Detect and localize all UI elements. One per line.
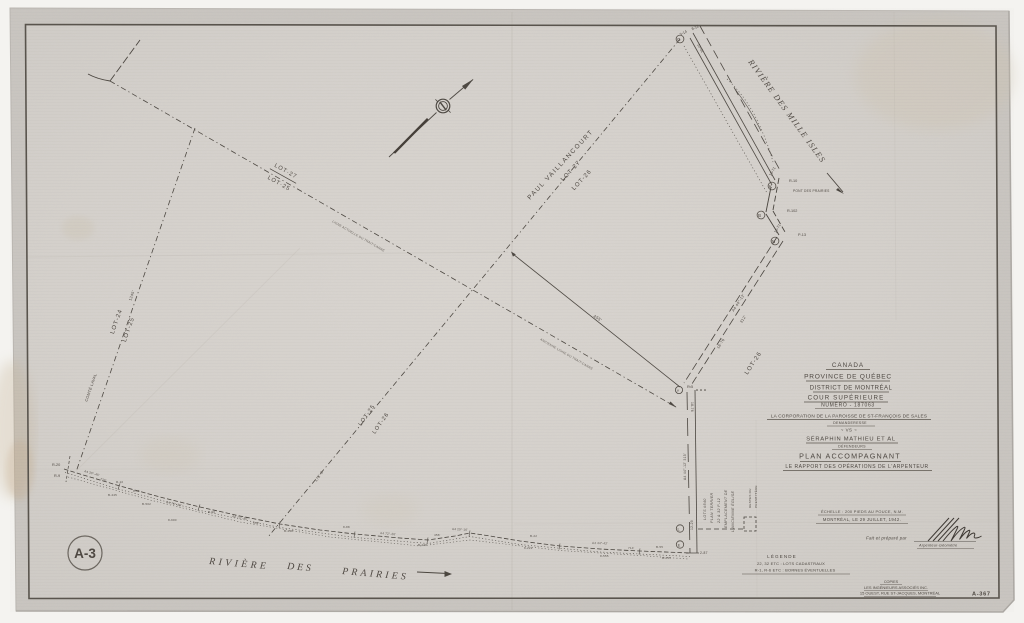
svg-text:COUR SUPÉRIEURE: COUR SUPÉRIEURE (808, 395, 885, 402)
svg-text:A4 44°-42': A4 44°-42' (592, 541, 608, 546)
svg-text:Arpenteur-Géomètre: Arpenteur-Géomètre (918, 544, 957, 548)
svg-text:LA CORPORATION DE LA PAROISSE: LA CORPORATION DE LA PAROISSE DE ST-FRAN… (771, 414, 927, 419)
svg-text:456': 456' (434, 533, 441, 537)
svg-text:LE RAPPORT DES OPÉRATIONS DE L: LE RAPPORT DES OPÉRATIONS DE L'ARPENTEUR (785, 463, 928, 470)
svg-text:MONTRÉAL, LE 29 JUILLET, 1942.: MONTRÉAL, LE 29 JUILLET, 1942. (823, 517, 901, 522)
svg-text:B-55: B-55 (656, 545, 663, 549)
svg-text:8-555: 8-555 (600, 554, 609, 558)
svg-text:22 & 32 P-12: 22 & 32 P-12 (717, 498, 721, 524)
svg-text:LOTS #540: LOTS #540 (703, 498, 707, 520)
svg-text:714': 714' (628, 546, 635, 550)
svg-text:12-29: 12-29 (690, 520, 694, 530)
svg-text:DEMANDERESSE: DEMANDERESSE (833, 421, 867, 425)
svg-text:B-445: B-445 (108, 493, 117, 497)
svg-text:EMPLACEMENT DE: EMPLACEMENT DE (724, 489, 728, 528)
svg-text:B-255: B-255 (662, 556, 671, 560)
svg-text:B-438: B-438 (418, 543, 427, 547)
svg-text:15 OUEST, RUE ST-JACQUES, MONT: 15 OUEST, RUE ST-JACQUES, MONTRÉAL (860, 591, 941, 596)
svg-text:B: B (758, 213, 761, 218)
svg-text:DÉFENDEURS: DÉFENDEURS (838, 444, 866, 449)
svg-text:A-3: A-3 (74, 546, 96, 561)
svg-text:8-900: 8-900 (168, 518, 177, 522)
svg-text:B-22: B-22 (530, 534, 537, 538)
svg-text:PLAN TERRIER: PLAN TERRIER (710, 493, 714, 523)
svg-text:Fait et préparé par: Fait et préparé par (866, 536, 907, 541)
svg-text:NUMÉRO - 187063: NUMÉRO - 187063 (821, 402, 875, 409)
svg-text:A-367: A-367 (972, 592, 991, 598)
svg-text:DISTRICT DE MONTRÉAL: DISTRICT DE MONTRÉAL (810, 385, 893, 392)
svg-text:R-22: R-22 (116, 480, 123, 484)
svg-text:PRESBYTÈRE: PRESBYTÈRE (753, 485, 758, 508)
svg-text:R-9: R-9 (54, 474, 60, 478)
svg-text:N: N (772, 239, 775, 244)
svg-text:~ VS ~: ~ VS ~ (841, 428, 857, 433)
svg-text:CANADA: CANADA (832, 362, 864, 369)
svg-text:R-10: R-10 (789, 179, 797, 183)
svg-text:2-87: 2-87 (700, 551, 708, 555)
svg-text:PONT DES PRAIRIES: PONT DES PRAIRIES (793, 189, 830, 193)
svg-text:Y: Y (677, 388, 680, 393)
svg-text:RESTES DU: RESTES DU (748, 488, 752, 508)
svg-text:R-5: R-5 (687, 385, 693, 389)
svg-text:G: G (677, 37, 681, 42)
svg-text:552': 552' (253, 521, 260, 525)
svg-text:R-20: R-20 (52, 463, 60, 467)
svg-text:B-502: B-502 (142, 502, 151, 506)
svg-text:B-90: B-90 (208, 510, 215, 514)
svg-text:B-448: B-448 (284, 529, 293, 533)
svg-text:LES INGÉNIEURS ASSOCIÉS INC.: LES INGÉNIEURS ASSOCIÉS INC. (864, 585, 928, 590)
svg-text:A4 44°-12' 315': A4 44°-12' 315' (683, 453, 687, 480)
svg-text:A4 29°-16': A4 29°-16' (452, 527, 468, 532)
svg-text:COPIES: COPIES (884, 580, 899, 584)
svg-text:LÉGENDE: LÉGENDE (767, 553, 797, 559)
svg-text:L'ANCIENNE ÉGLISE: L'ANCIENNE ÉGLISE (730, 491, 735, 532)
svg-text:18-76: 18-76 (690, 402, 694, 412)
svg-text:PROVINCE DE QUÉBEC: PROVINCE DE QUÉBEC (804, 372, 892, 381)
svg-text:8-65: 8-65 (133, 489, 140, 493)
svg-text:E: E (678, 542, 681, 547)
svg-text:R-102: R-102 (787, 209, 797, 213)
svg-text:P-13: P-13 (798, 233, 806, 237)
svg-text:8-88: 8-88 (343, 525, 350, 529)
svg-text:PLAN ACCOMPAGNANT: PLAN ACCOMPAGNANT (799, 452, 901, 461)
svg-text:R-1, R-6 ETC : BORNES ÉVENTUEL: R-1, R-6 ETC : BORNES ÉVENTUELLES (755, 568, 836, 573)
svg-text:8-222: 8-222 (524, 546, 533, 550)
svg-text:ÉCHELLE : 200 PIEDS AU POUCE,: ÉCHELLE : 200 PIEDS AU POUCE, N.M. (821, 509, 903, 514)
svg-text:SÉRAPHIN MATHIEU ET AL: SÉRAPHIN MATHIEU ET AL (806, 436, 896, 443)
svg-text:22, 32 ETC : LOTS CADASTRAUX: 22, 32 ETC : LOTS CADASTRAUX (757, 561, 825, 566)
